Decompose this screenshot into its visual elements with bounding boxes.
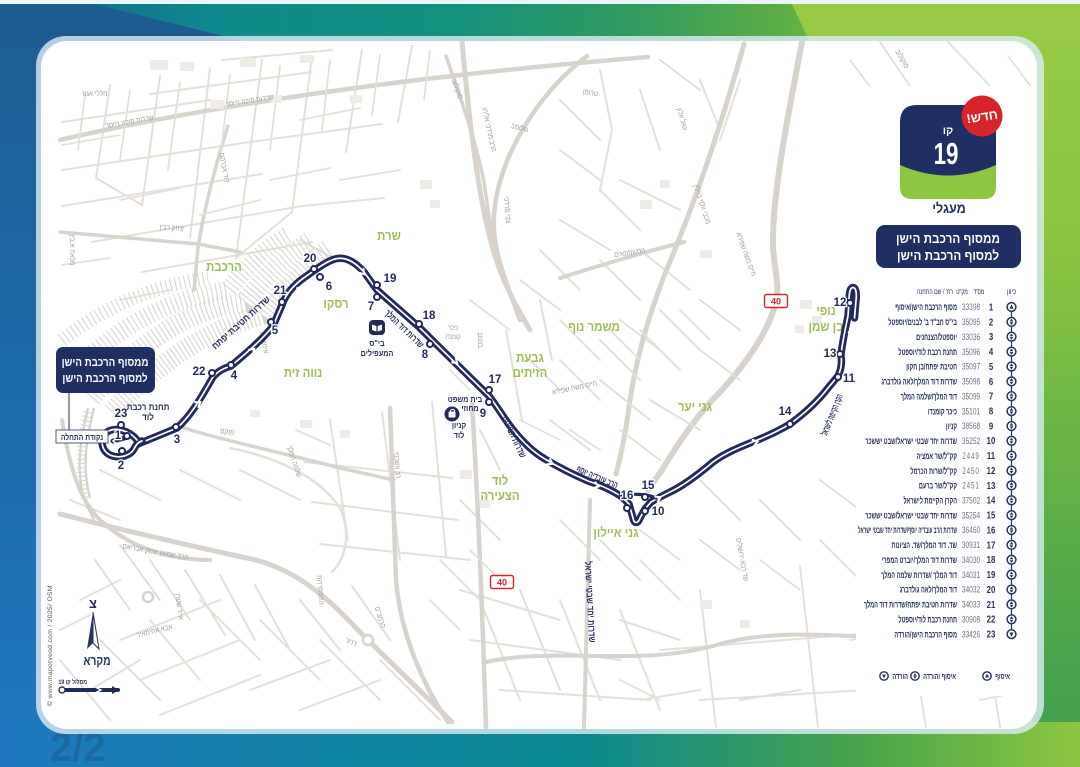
svg-text:נקודת התחלה: נקודת התחלה — [61, 432, 103, 442]
svg-text:שדרות יחד שבטי ישראל/שבט יששכר: שדרות יחד שבטי ישראל/שבט יששכר — [865, 436, 957, 447]
svg-text:ממסוף הרכבת הישן: ממסוף הרכבת הישן — [62, 356, 149, 369]
svg-text:גבעת: גבעת — [516, 350, 544, 365]
svg-text:ממסוף הרכבת הישן: ממסוף הרכבת הישן — [896, 231, 1000, 246]
svg-text:17: 17 — [987, 539, 996, 550]
svg-text:34032: 34032 — [962, 585, 980, 595]
svg-text:6: 6 — [989, 376, 993, 387]
svg-text:תחנת רכבת: תחנת רכבת — [127, 402, 170, 413]
svg-text:18: 18 — [987, 554, 996, 565]
svg-text:צ: צ — [89, 596, 97, 611]
svg-text:21: 21 — [274, 285, 287, 297]
svg-text:יוספטל/הצנחנים: יוספטל/הצנחנים — [916, 331, 957, 342]
svg-text:13: 13 — [987, 480, 996, 491]
svg-text:5: 5 — [989, 361, 993, 372]
svg-text:הורדה: הורדה — [892, 672, 908, 681]
svg-text:כיכר: כיכר — [448, 324, 459, 332]
svg-text:דוד המלך/לאה גולדברג: דוד המלך/לאה גולדברג — [900, 584, 958, 595]
svg-text:קניון: קניון — [452, 420, 466, 430]
svg-text:35101: 35101 — [962, 406, 980, 416]
svg-text:40: 40 — [771, 297, 781, 307]
svg-text:19: 19 — [384, 273, 397, 285]
svg-text:35252: 35252 — [962, 436, 980, 446]
svg-text:מעגלי: מעגלי — [932, 200, 966, 216]
svg-text:34030: 34030 — [962, 555, 981, 565]
svg-text:תחנת רכבת לוד/יוספטל: תחנת רכבת לוד/יוספטל — [898, 614, 957, 625]
svg-text:5: 5 — [272, 325, 279, 337]
svg-text:הקרן הקיימת לישראל: הקרן הקיימת לישראל — [903, 495, 957, 506]
svg-text:לוד: לוד — [492, 473, 509, 488]
svg-text:40: 40 — [497, 578, 507, 588]
svg-text:23: 23 — [115, 408, 128, 420]
svg-text:רח' / שם התחנה: רח' / שם התחנה — [917, 288, 953, 296]
svg-text:30908: 30908 — [962, 615, 981, 625]
svg-text:המעפילים: המעפילים — [361, 348, 394, 358]
svg-text:19: 19 — [987, 569, 996, 580]
svg-text:הרכבת: הרכבת — [206, 259, 242, 274]
svg-text:19: 19 — [934, 136, 959, 170]
svg-text:שדרות דוד המלך/לאה גולדברג: שדרות דוד המלך/לאה גולדברג — [881, 376, 957, 387]
svg-text:35097: 35097 — [962, 362, 980, 372]
svg-text:מסוף הרכבת הישן/איסוף: מסוף הרכבת הישן/איסוף — [895, 302, 957, 313]
svg-text:16: 16 — [621, 490, 634, 502]
svg-text:גני יער: גני יער — [678, 399, 712, 414]
svg-text:© www.mapotveod.com / 2025/ OS: © www.mapotveod.com / 2025/ OSM — [46, 585, 54, 706]
svg-text:21: 21 — [987, 599, 996, 610]
svg-text:20: 20 — [987, 584, 996, 595]
svg-text:מחוזי: מחוזי — [461, 403, 479, 413]
svg-text:35095: 35095 — [962, 317, 981, 327]
svg-text:35098: 35098 — [962, 377, 981, 387]
svg-text:15: 15 — [987, 510, 996, 521]
svg-text:שדרות דוד המלך/יוברט המפרי: שדרות דוד המלך/יוברט המפרי — [882, 555, 957, 566]
svg-text:קק"ל/שרות הכרמל: קק"ל/שרות הכרמל — [910, 465, 957, 476]
svg-text:11: 11 — [843, 373, 856, 385]
svg-text:בן שמן: בן שמן — [809, 319, 844, 334]
svg-text:לוד: לוד — [142, 412, 154, 423]
svg-text:10: 10 — [652, 506, 665, 518]
svg-text:דוד המלך /שדרות שלמה המלך: דוד המלך /שדרות שלמה המלך — [881, 569, 957, 580]
svg-text:20: 20 — [304, 253, 317, 265]
svg-text:33398: 33398 — [962, 302, 981, 312]
svg-text:15: 15 — [642, 480, 655, 492]
svg-text:33036: 33036 — [962, 332, 981, 342]
svg-text:30931: 30931 — [962, 540, 980, 550]
svg-text:בי"ס חב"ד ב' לבנים/יוספטל: בי"ס חב"ד ב' לבנים/יוספטל — [888, 317, 957, 328]
svg-text:8: 8 — [422, 349, 429, 361]
svg-text:מק"ט: מק"ט — [956, 288, 968, 296]
svg-text:נווה זית: נווה זית — [284, 365, 322, 380]
svg-text:קניון: קניון — [946, 421, 957, 432]
svg-text:כיוון: כיוון — [1007, 288, 1017, 296]
svg-text:מלאת א.בין: מלאת א.בין — [68, 235, 77, 266]
svg-text:שדרות חטיבת יפתח/שדרות דוד המל: שדרות חטיבת יפתח/שדרות דוד המלך — [864, 599, 957, 610]
svg-text:הזיתים: הזיתים — [513, 365, 548, 380]
svg-text:שדרות יחד שבטי ישראל/שבט יששכר: שדרות יחד שבטי ישראל/שבט יששכר — [865, 510, 957, 521]
svg-text:2: 2 — [989, 316, 993, 327]
svg-text:34031: 34031 — [962, 570, 980, 580]
svg-text:שד. דוד המלך/שד. הציונות: שד. דוד המלך/שד. הציונות — [891, 540, 957, 551]
svg-text:איסוף: איסוף — [995, 672, 1010, 681]
svg-text:פנקס: פנקס — [220, 428, 235, 437]
svg-text:שרת: שרת — [377, 228, 401, 243]
svg-text:33426: 33426 — [962, 629, 981, 639]
svg-text:9: 9 — [989, 420, 993, 431]
svg-text:מס'ד: מס'ד — [974, 288, 985, 296]
svg-text:גני איילון: גני איילון — [593, 525, 638, 540]
svg-text:1: 1 — [989, 301, 993, 312]
svg-text:8: 8 — [989, 406, 993, 417]
svg-text:הצעירה: הצעירה — [480, 488, 519, 503]
svg-text:17: 17 — [489, 374, 502, 386]
svg-text:6: 6 — [326, 281, 332, 293]
svg-text:קק"ל/שר אמציה: קק"ל/שר אמציה — [917, 450, 957, 461]
svg-text:10: 10 — [987, 435, 996, 446]
svg-text:2449: 2449 — [962, 451, 979, 461]
svg-text:12: 12 — [987, 465, 996, 476]
svg-text:7: 7 — [368, 301, 374, 313]
svg-text:14: 14 — [779, 406, 792, 418]
svg-text:38568: 38568 — [962, 421, 981, 431]
svg-text:23: 23 — [987, 629, 996, 640]
svg-text:7: 7 — [989, 391, 993, 402]
svg-text:14: 14 — [987, 495, 996, 506]
svg-text:בנטוב: בנטוב — [476, 332, 484, 348]
svg-text:13: 13 — [824, 348, 837, 360]
svg-text:חטיבת יפתח/בן חקון: חטיבת יפתח/בן חקון — [906, 361, 957, 372]
svg-text:35099: 35099 — [962, 391, 980, 401]
svg-text:4: 4 — [989, 346, 993, 357]
svg-text:למסוף הרכבת הישן: למסוף הרכבת הישן — [897, 248, 999, 263]
svg-text:איסוף והורדה: איסוף והורדה — [923, 673, 956, 681]
svg-text:שדרות הרב עובדיה יוסף/שדרות יח: שדרות הרב עובדיה יוסף/שדרות יחד שבטי ישר… — [858, 524, 957, 535]
svg-text:9: 9 — [480, 408, 486, 420]
svg-text:דוד המלך/שלמה המלך: דוד המלך/שלמה המלך — [901, 391, 958, 402]
svg-text:12: 12 — [834, 297, 847, 309]
svg-text:תחנת רכבת לוד/יוספטל: תחנת רכבת לוד/יוספטל — [898, 346, 957, 357]
svg-text:35254: 35254 — [962, 510, 981, 520]
svg-text:16: 16 — [987, 524, 996, 535]
svg-text:2450: 2450 — [962, 466, 979, 476]
svg-text:למסוף הרכבת הישן: למסוף הרכבת הישן — [62, 372, 147, 385]
svg-text:קומנדו: קומנדו — [445, 333, 461, 341]
svg-text:1: 1 — [115, 430, 122, 442]
svg-text:36460: 36460 — [962, 525, 981, 535]
svg-text:4: 4 — [231, 370, 238, 382]
svg-text:בי"ס: בי"ס — [369, 338, 384, 348]
svg-text:לוד: לוד — [454, 430, 465, 440]
svg-text:כיכר קומנדו: כיכר קומנדו — [928, 406, 957, 417]
svg-text:22: 22 — [987, 614, 996, 625]
svg-text:11: 11 — [987, 450, 995, 461]
svg-text:חללי אגוז: חללי אגוז — [83, 90, 108, 99]
svg-text:35096: 35096 — [962, 347, 981, 357]
svg-text:37502: 37502 — [962, 496, 980, 506]
svg-text:3: 3 — [989, 331, 993, 342]
svg-text:34033: 34033 — [962, 600, 981, 610]
svg-text:2: 2 — [118, 460, 124, 472]
svg-text:מסוף הרכבת הישן/הורדה: מסוף הרכבת הישן/הורדה — [894, 629, 957, 640]
svg-text:22: 22 — [193, 366, 206, 378]
svg-text:2451: 2451 — [962, 480, 979, 490]
svg-text:קק"ל/שר ברעם: קק"ל/שר ברעם — [919, 480, 957, 491]
svg-text:משמר נוף: משמר נוף — [568, 319, 620, 334]
svg-text:3: 3 — [174, 434, 180, 446]
svg-text:18: 18 — [423, 310, 436, 322]
svg-text:מקרא: מקרא — [83, 654, 110, 668]
svg-text:רסקו: רסקו — [323, 296, 348, 311]
svg-text:קו: קו — [943, 125, 954, 137]
svg-text:מסלול קו 19: מסלול קו 19 — [58, 677, 87, 686]
